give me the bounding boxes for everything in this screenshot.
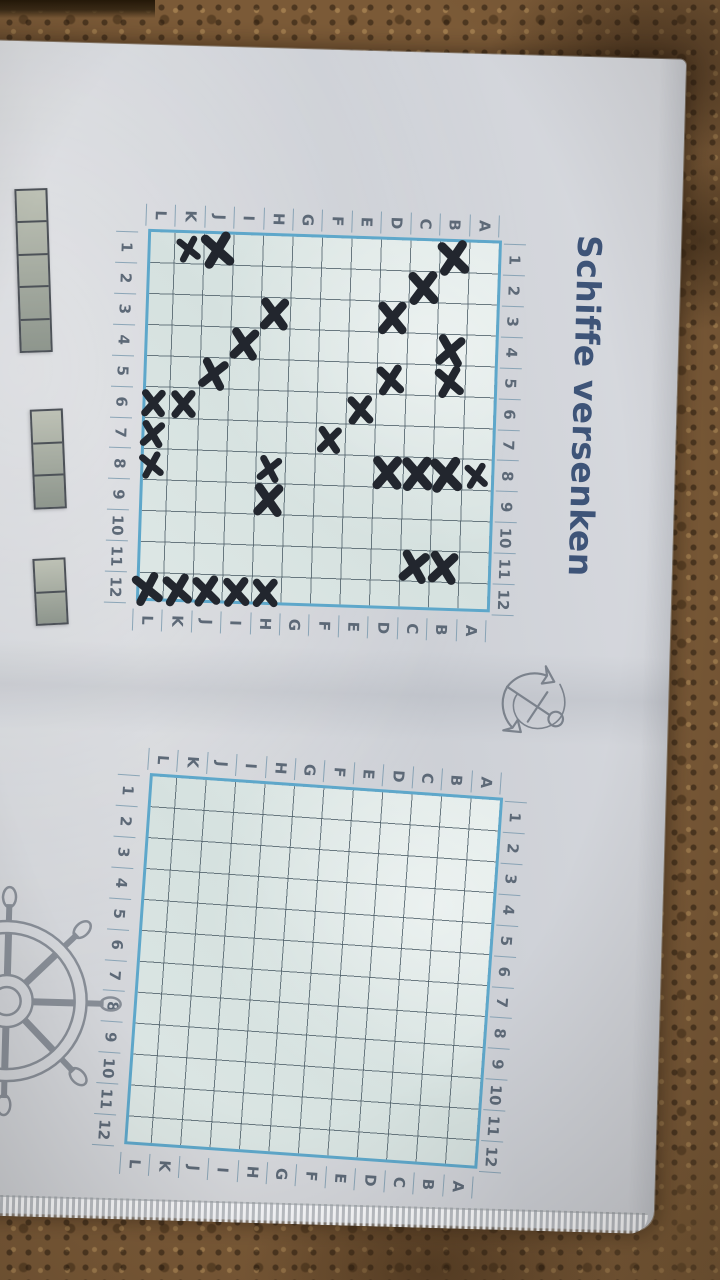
hit-mark-x-B8	[430, 457, 464, 494]
column-label: 4	[112, 323, 135, 355]
left-grid-block: 123456789101112123456789101112ABCDEFGHIJ…	[95, 194, 529, 648]
row-label: A	[470, 215, 500, 238]
row-label: E	[354, 762, 385, 786]
row-label: K	[178, 750, 209, 774]
row-label: C	[411, 213, 441, 236]
row-label: F	[296, 1164, 327, 1188]
ship-cell	[35, 559, 66, 591]
row-label: B	[442, 768, 473, 792]
column-label: 1	[116, 774, 140, 806]
row-label: A	[456, 619, 486, 642]
hit-mark-x-B5	[434, 365, 466, 399]
row-label: C	[384, 1170, 415, 1194]
hit-mark-x-L8	[138, 451, 165, 480]
worksheet-in-plastic-sleeve: Schiffe versenken 1234567891011121234567…	[0, 37, 686, 1231]
row-labels-right: ABCDEFGHIJKL	[132, 609, 487, 643]
row-label: K	[149, 1154, 180, 1178]
row-label: I	[208, 1158, 239, 1182]
column-label: 5	[111, 354, 134, 386]
ship-cell	[21, 318, 51, 351]
column-label: 3	[113, 293, 136, 325]
page-title: Schiffe versenken	[561, 235, 610, 578]
hit-mark-x-H8	[255, 454, 284, 485]
column-label: 7	[109, 416, 132, 448]
ship-wheel-icon	[0, 873, 135, 1130]
hit-mark-x-K1	[175, 235, 202, 263]
hit-mark-x-D8	[371, 455, 404, 490]
hit-mark-x-E6	[346, 395, 374, 425]
column-label: 1	[503, 801, 527, 833]
row-label: G	[267, 1162, 298, 1186]
hit-mark-x-J12	[192, 575, 222, 607]
column-label: 9	[495, 491, 518, 523]
hit-mark-x-K12	[161, 573, 193, 607]
row-label: G	[293, 209, 323, 232]
ship-cell	[17, 220, 47, 253]
column-label: 7	[490, 986, 514, 1018]
hit-mark-x-H9	[252, 482, 286, 518]
row-label: A	[471, 771, 502, 795]
ship-cell	[32, 410, 62, 442]
column-label: 3	[501, 305, 524, 337]
hit-mark-x-L6	[140, 388, 168, 417]
column-label: 2	[114, 262, 137, 294]
hit-mark-x-L7	[139, 419, 168, 449]
column-label: 3	[111, 835, 135, 867]
column-label: 8	[108, 447, 131, 479]
row-label: J	[192, 611, 222, 634]
column-label: 9	[486, 1048, 510, 1080]
hit-mark-x-F7	[316, 425, 344, 455]
column-label: 2	[501, 832, 525, 864]
row-label: C	[398, 617, 428, 640]
hit-mark-x-C8	[401, 457, 433, 491]
hit-mark-x-K6	[170, 390, 197, 419]
column-label: 6	[498, 398, 521, 430]
anchor-icon	[454, 627, 598, 771]
column-label: 1	[115, 231, 138, 263]
row-label: D	[368, 616, 398, 639]
row-label: J	[179, 1156, 210, 1180]
column-label: 12	[479, 1140, 503, 1173]
row-label: H	[237, 1160, 268, 1184]
hit-mark-x-J5	[196, 356, 231, 393]
photo-of-battleship-worksheet: Schiffe versenken 1234567891011121234567…	[0, 0, 720, 1280]
hit-mark-x-I4	[228, 326, 262, 362]
column-label: 6	[110, 385, 133, 417]
row-label: L	[145, 204, 176, 227]
marks-layer	[127, 776, 500, 1165]
ship-cell	[20, 285, 50, 318]
column-label: 4	[500, 336, 523, 368]
row-label: A	[443, 1175, 474, 1199]
row-label: K	[176, 205, 206, 228]
row-label: L	[119, 1152, 151, 1176]
column-label: 10	[483, 1078, 507, 1110]
row-label: J	[205, 206, 235, 229]
rotated-canvas: Schiffe versenken 1234567891011121234567…	[0, 0, 720, 1280]
row-label: C	[412, 766, 443, 790]
row-label: I	[236, 754, 267, 778]
column-label: 4	[496, 893, 520, 925]
hit-mark-x-B4	[434, 333, 468, 369]
row-label: G	[295, 758, 326, 782]
column-label: 10	[106, 509, 129, 541]
row-label: H	[264, 208, 294, 231]
column-label: 8	[496, 460, 519, 492]
ship-outline-2	[32, 557, 68, 626]
ship-cell	[16, 190, 46, 221]
row-label: F	[324, 760, 355, 784]
row-label: L	[147, 748, 179, 772]
column-labels-bottom: 123456789101112	[104, 231, 138, 604]
hit-mark-x-D5	[376, 364, 406, 396]
column-label: 8	[488, 1017, 512, 1049]
row-label: H	[266, 756, 297, 780]
row-label: E	[325, 1166, 356, 1190]
hit-mark-x-B1	[437, 240, 471, 276]
row-label: E	[339, 615, 369, 638]
row-label: I	[235, 207, 265, 230]
row-label: I	[221, 611, 251, 634]
row-label: G	[280, 613, 310, 636]
column-label: 11	[105, 540, 128, 572]
marks-layer	[139, 232, 499, 609]
hit-mark-x-H12	[252, 578, 280, 608]
column-label: 5	[494, 924, 518, 956]
column-label: 5	[499, 367, 522, 399]
row-label: D	[355, 1168, 386, 1192]
row-label: E	[352, 211, 382, 234]
column-label: 2	[502, 275, 525, 307]
column-label: 12	[104, 571, 127, 604]
row-label: D	[382, 212, 412, 235]
row-label: L	[132, 609, 163, 632]
row-label: B	[440, 214, 470, 237]
column-label: 11	[481, 1109, 505, 1141]
column-label: 6	[492, 955, 516, 987]
row-label: B	[413, 1172, 444, 1196]
sleeve-seam-edge	[0, 1190, 648, 1234]
column-label: 7	[497, 429, 520, 461]
ship-cell	[34, 474, 64, 508]
hit-mark-x-L12	[131, 571, 165, 607]
ship-cell	[36, 590, 67, 624]
row-label: F	[309, 614, 339, 637]
row-label: D	[383, 764, 414, 788]
right-grid-block: 123456789101112123456789101112ABCDEFGHIJ…	[82, 736, 532, 1204]
ship-cell	[18, 253, 48, 286]
row-label: K	[162, 610, 192, 633]
carpet-dark-edge	[0, 0, 155, 18]
fleet-ship-outlines	[653, 60, 686, 1232]
ship-outline-3	[30, 408, 67, 509]
row-label: B	[427, 618, 457, 641]
hit-mark-x-H3	[259, 297, 292, 332]
row-label: H	[250, 612, 280, 635]
board-with-hit-marks	[136, 229, 502, 613]
column-label: 3	[498, 863, 522, 895]
ship-cell	[33, 441, 63, 475]
hit-mark-x-D3	[377, 301, 409, 335]
hit-mark-x-I12	[222, 577, 250, 607]
column-label: 1	[503, 244, 526, 276]
ship-outline-5	[14, 188, 52, 353]
hit-mark-x-C2	[407, 271, 439, 305]
row-label: J	[207, 752, 238, 776]
empty-board	[124, 773, 503, 1169]
row-label: F	[323, 210, 353, 233]
column-label: 12	[492, 584, 515, 617]
column-label: 2	[114, 805, 138, 837]
column-label: 11	[493, 553, 516, 585]
hit-mark-x-A8	[464, 462, 489, 489]
column-label: 10	[494, 522, 517, 554]
hit-mark-x-J1	[200, 231, 237, 270]
column-label: 9	[107, 478, 130, 510]
